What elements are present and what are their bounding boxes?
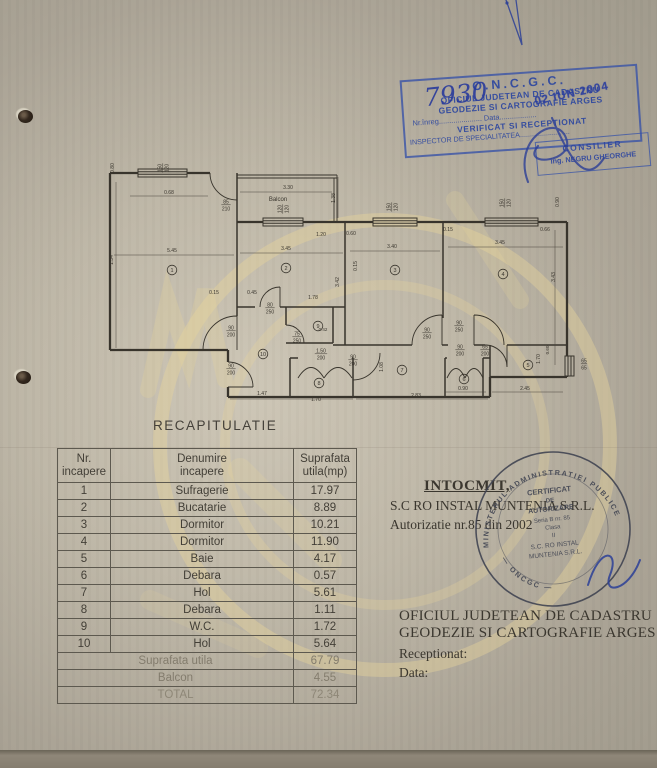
- svg-text:0.60: 0.60: [545, 345, 550, 354]
- table-row: 1Sufragerie17.97: [58, 483, 357, 500]
- svg-text:120: 120: [284, 205, 290, 214]
- svg-text:1.78: 1.78: [308, 295, 318, 301]
- table-row: 9W.C.1.72: [58, 619, 357, 636]
- svg-text:1.70: 1.70: [536, 354, 542, 364]
- table-row: 2Bucatarie8.89: [58, 500, 357, 517]
- col-header-suprafata: Suprafatautila(mp): [294, 449, 357, 483]
- svg-text:65: 65: [482, 344, 488, 350]
- svg-text:MINISTERUL ADMINISTRATIEI PU: MINISTERUL ADMINISTRATIEI PUBLICE: [474, 461, 625, 549]
- recap-title: RECAPITULATIE: [153, 418, 277, 433]
- punch-hole-top: [18, 110, 33, 123]
- footer-office-line2: GEODEZIE SI CARTOGRAFIE ARGES: [399, 625, 657, 642]
- svg-text:Clasa: Clasa: [545, 524, 562, 532]
- svg-text:200: 200: [227, 332, 236, 338]
- svg-text:250: 250: [293, 338, 302, 344]
- svg-text:10: 10: [260, 352, 266, 358]
- footer-receptionat: Receptionat:: [399, 646, 657, 662]
- svg-text:250: 250: [266, 309, 275, 315]
- svg-text:200: 200: [227, 370, 236, 376]
- svg-text:5: 5: [526, 363, 529, 369]
- svg-text:3.45: 3.45: [281, 246, 291, 252]
- svg-text:90: 90: [424, 327, 430, 333]
- table-row: 4Dormitor11.90: [58, 534, 357, 551]
- svg-text:5.45: 5.45: [167, 248, 177, 254]
- svg-text:250: 250: [455, 327, 464, 333]
- svg-text:AUTORIZARE: AUTORIZARE: [528, 504, 575, 516]
- footer-block: OFICIUL JUDETEAN DE CADASTRU GEODEZIE SI…: [399, 608, 657, 681]
- svg-text:DE: DE: [546, 498, 555, 505]
- svg-text:0.45: 0.45: [247, 290, 257, 296]
- svg-text:150: 150: [157, 164, 163, 173]
- round-certification-stamp: MINISTERUL ADMINISTRATIEI PUBLICE — ONCG…: [458, 434, 647, 623]
- svg-text:8: 8: [317, 381, 320, 387]
- svg-text:65: 65: [581, 365, 587, 371]
- svg-text:CERTIFICAT: CERTIFICAT: [527, 484, 572, 498]
- col-header-denumire: Denumireincapere: [111, 449, 294, 483]
- svg-text:0.15: 0.15: [443, 227, 453, 233]
- footer-data: Data:: [399, 665, 657, 681]
- svg-text:0.15: 0.15: [209, 290, 219, 296]
- svg-text:9: 9: [316, 324, 319, 330]
- table-row: 7Hol5.61: [58, 585, 357, 602]
- svg-text:2: 2: [284, 266, 287, 272]
- svg-text:1.70: 1.70: [311, 397, 321, 403]
- svg-text:90: 90: [228, 363, 234, 369]
- svg-text:200: 200: [456, 351, 465, 357]
- svg-text:150: 150: [499, 199, 505, 208]
- svg-text:3.40: 3.40: [387, 244, 397, 250]
- round-stamp-center-text: CERTIFICATDEAUTORIZARESeria B nr. 85Clas…: [522, 483, 583, 560]
- svg-text:1.38: 1.38: [331, 193, 337, 203]
- svg-text:90: 90: [456, 320, 462, 326]
- svg-text:0.15: 0.15: [353, 261, 359, 271]
- svg-text:120: 120: [164, 164, 170, 173]
- svg-text:250: 250: [423, 334, 432, 340]
- svg-text:1.47: 1.47: [257, 391, 267, 397]
- svg-text:200: 200: [481, 351, 490, 357]
- paper-bottom-edge: [0, 750, 657, 768]
- table-row: 10Hol5.64: [58, 636, 357, 653]
- table-row: 6Debara0.57: [58, 568, 357, 585]
- footer-office-line1: OFICIUL JUDETEAN DE CADASTRU: [399, 608, 657, 625]
- scanned-document-photo: 1501200.800.681.345.4585210Balcon3.301.3…: [0, 0, 657, 768]
- table-row: 3Dormitor10.21: [58, 517, 357, 534]
- svg-text:75: 75: [294, 331, 300, 337]
- svg-text:0.68: 0.68: [164, 190, 174, 196]
- svg-text:1: 1: [170, 268, 173, 274]
- dimension-lines: [114, 177, 563, 399]
- svg-text:1.20: 1.20: [316, 232, 326, 238]
- table-row: 5Baie4.17: [58, 551, 357, 568]
- svg-text:0.42: 0.42: [319, 327, 328, 332]
- svg-text:120: 120: [506, 199, 512, 208]
- svg-text:3.30: 3.30: [283, 185, 293, 191]
- svg-text:0.80: 0.80: [110, 163, 116, 173]
- svg-text:0.66: 0.66: [540, 227, 550, 233]
- svg-text:Seria B nr. 85: Seria B nr. 85: [534, 515, 571, 525]
- svg-text:6: 6: [462, 377, 465, 383]
- svg-text:3.45: 3.45: [495, 240, 505, 246]
- svg-text:80: 80: [267, 302, 273, 308]
- svg-text:1.50: 1.50: [316, 348, 326, 354]
- recap-table: Nr.incapere Denumireincapere Suprafataut…: [57, 448, 357, 704]
- svg-text:3: 3: [393, 268, 396, 274]
- svg-text:90: 90: [457, 344, 463, 350]
- svg-text:3.42: 3.42: [335, 277, 341, 287]
- folding-doors: [298, 368, 483, 379]
- svg-text:0.90: 0.90: [555, 197, 561, 207]
- svg-text:120: 120: [393, 203, 399, 212]
- svg-text:2.83: 2.83: [411, 393, 421, 399]
- svg-text:4: 4: [501, 272, 504, 278]
- summary-row: Balcon4.55: [58, 670, 357, 687]
- svg-text:90: 90: [228, 325, 234, 331]
- svg-text:210: 210: [222, 206, 231, 212]
- svg-text:7: 7: [400, 368, 403, 374]
- summary-row: TOTAL72.34: [58, 687, 357, 704]
- svg-text:200: 200: [349, 361, 358, 367]
- plan-labels: 1501200.800.681.345.4585210Balcon3.301.3…: [109, 163, 587, 403]
- summary-row: Suprafata utila67.79: [58, 653, 357, 670]
- svg-text:85: 85: [223, 199, 229, 205]
- svg-text:120: 120: [277, 205, 283, 214]
- svg-text:2.45: 2.45: [520, 386, 530, 392]
- svg-text:0.60: 0.60: [346, 231, 356, 237]
- floor-plan: 1501200.800.681.345.4585210Balcon3.301.3…: [100, 160, 592, 408]
- svg-text:90: 90: [350, 354, 356, 360]
- svg-text:Balcon: Balcon: [269, 197, 287, 203]
- svg-text:0.90: 0.90: [458, 386, 468, 392]
- svg-text:200: 200: [317, 355, 326, 361]
- svg-text:3.43: 3.43: [551, 272, 557, 282]
- svg-text:1.08: 1.08: [379, 362, 385, 372]
- punch-hole-bottom: [16, 371, 31, 384]
- col-header-nr: Nr.incapere: [58, 449, 111, 483]
- svg-text:65: 65: [581, 358, 587, 364]
- svg-text:1.34: 1.34: [109, 255, 115, 265]
- svg-text:II: II: [552, 533, 556, 539]
- svg-text:150: 150: [386, 203, 392, 212]
- table-row: 8Debara1.11: [58, 602, 357, 619]
